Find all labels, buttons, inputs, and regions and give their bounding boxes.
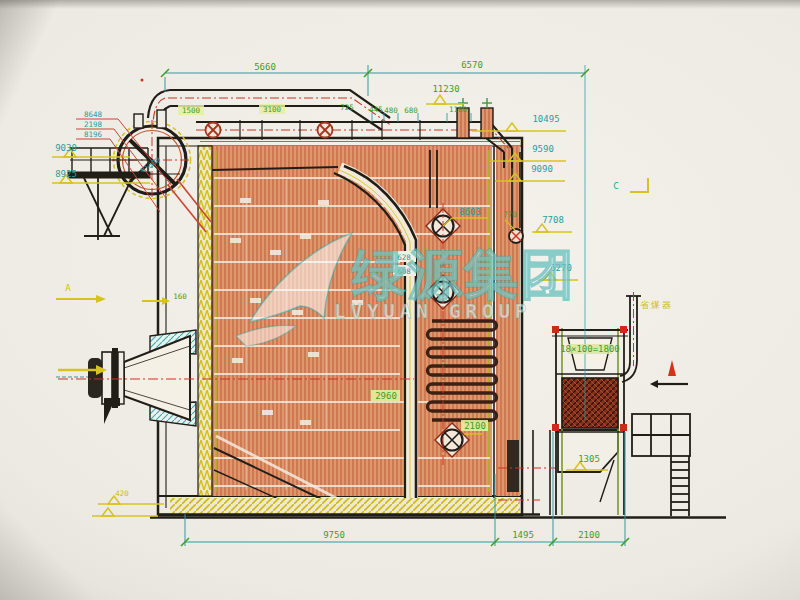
marker-a-label: A: [65, 283, 71, 293]
dim-445: 445: [369, 105, 383, 114]
elev-9090: 9090: [531, 164, 553, 174]
dim-2100-mid: 2100: [464, 421, 486, 431]
elev-11230-marker: 11230: [426, 84, 464, 104]
dim-1495: 1495: [512, 530, 534, 540]
photo-of-boiler-drawing: Φ1600: [0, 0, 800, 600]
dim-9750: 9750: [323, 530, 345, 540]
watermark-latin: LVYUAN GROUP: [334, 300, 531, 322]
photo-speck: [141, 79, 144, 82]
elev-9590: 9590: [532, 144, 554, 154]
dim-6570: 6570: [461, 60, 483, 70]
elev-420: 420: [115, 489, 129, 498]
dim-2100-bottom: 2100: [578, 530, 600, 540]
pipe-tag-3: 8196: [84, 130, 103, 139]
boiler-ga-drawing: Φ1600: [0, 0, 800, 600]
dim-770: 770: [503, 210, 517, 219]
sootblower-valve: [509, 229, 523, 243]
watermark-chinese: 绿源集团: [351, 243, 576, 306]
marker-c-label: C: [613, 181, 618, 191]
dim-480: 480: [384, 106, 398, 115]
eco-pitch-label: 18×100=1800: [560, 344, 620, 354]
wall-tag-arrow: 160: [142, 292, 187, 305]
note-economizer: 省煤器: [640, 300, 673, 310]
ladder: [671, 456, 689, 516]
elev-7708: 7708: [542, 215, 564, 225]
elev-8603: 8603: [459, 207, 481, 217]
dim-680: 680: [404, 106, 418, 115]
dim-2960: 2960: [375, 391, 397, 401]
dim-3100: 3100: [263, 105, 282, 114]
drum-platform: [68, 148, 150, 240]
elev-9030: 9030: [55, 143, 77, 153]
elev-11230: 11230: [432, 84, 459, 94]
dim-1500: 1500: [182, 106, 201, 115]
dim-725: 725: [340, 103, 354, 112]
section-flag: [650, 360, 688, 388]
furnace-hatch: [198, 146, 520, 508]
elev-1305: 1305: [578, 454, 600, 464]
support-platform: [632, 414, 690, 456]
pipe-tag-2: 2198: [84, 120, 103, 129]
steam-drum: Φ1600: [112, 110, 192, 200]
elev-8925: 8925: [55, 169, 77, 179]
dim-1180: 1180: [449, 105, 468, 114]
wall-tag: 160: [173, 292, 187, 301]
dim-5660: 5660: [254, 62, 276, 72]
pipe-tag-1: 8648: [84, 110, 103, 119]
economizer: [552, 292, 641, 515]
section-marker-a: A: [56, 283, 106, 303]
elev-10495: 10495: [532, 114, 559, 124]
section-marker-c: C: [613, 178, 648, 192]
